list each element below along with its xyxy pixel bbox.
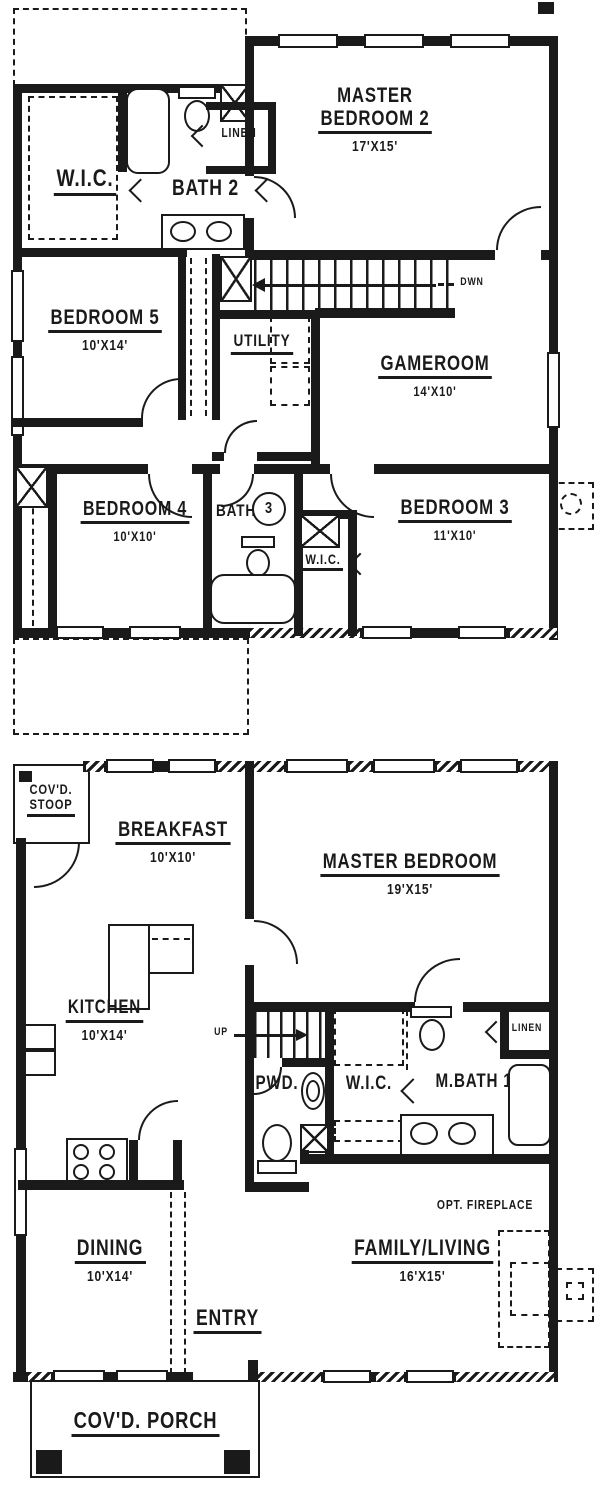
entry-name: ENTRY <box>194 1306 262 1334</box>
room-label-master-bedroom: MASTER BEDROOM 19'X15' <box>314 850 506 899</box>
stair-side-wall <box>212 254 220 420</box>
entry-column-dash <box>184 1192 186 1374</box>
sink <box>206 221 232 242</box>
door-arc <box>224 420 257 453</box>
room-label-breakfast: BREAKFAST 10'X10' <box>105 818 241 867</box>
door-opening <box>330 464 374 474</box>
linen-wall <box>500 1050 550 1059</box>
wic2-right-wall <box>348 510 357 636</box>
closet-window-box <box>15 466 48 508</box>
stairs-up-label: UP <box>209 1026 233 1038</box>
toilet-tank <box>410 1006 452 1018</box>
room-label-porch: COV'D. PORCH <box>68 1408 224 1437</box>
floor-plan-canvas: LINEN W.I.C. BATH 2 MASTER BEDROOM 2 17'… <box>0 0 600 1496</box>
fireplace-text: OPT. FIREPLACE <box>437 1198 533 1212</box>
lower-left-wall <box>16 838 26 1380</box>
bathtub <box>126 88 170 174</box>
dining-name: DINING <box>74 1236 145 1264</box>
gameroom-name: GAMEROOM <box>378 352 492 379</box>
window <box>460 759 518 773</box>
window <box>406 1370 454 1383</box>
kitchen-inner-wall <box>129 1140 138 1190</box>
chase-box <box>300 514 340 548</box>
chimney-flue-box <box>566 1282 584 1300</box>
burner <box>73 1144 89 1160</box>
utility-right-wall <box>311 310 320 466</box>
door-leaf <box>128 178 152 202</box>
stair-left-wall <box>245 1002 254 1192</box>
bath3-number: 3 <box>262 500 276 518</box>
door-opening <box>495 250 541 260</box>
window <box>362 626 412 639</box>
window <box>323 1370 371 1383</box>
wall-cavity-dash <box>190 258 192 416</box>
master-name: MASTER BEDROOM <box>320 850 499 877</box>
stoop-line2: STOOP <box>27 797 75 816</box>
room-label-linen-lower: LINEN <box>509 1022 546 1034</box>
kitchen-inner-wall <box>173 1140 182 1190</box>
window <box>286 759 348 773</box>
window <box>364 34 424 48</box>
bedroom5-bottom-wall <box>13 418 143 427</box>
closet-wall <box>48 464 57 636</box>
room-label-wic: W.I.C. <box>41 166 129 196</box>
room-label-bedroom4: BEDROOM 4 10'X10' <box>75 498 195 544</box>
chimney-flue-circle <box>560 493 582 515</box>
dwn-text: DWN <box>460 276 483 288</box>
burner <box>73 1164 89 1180</box>
counter-dash <box>152 938 190 940</box>
bedroom-row-wall <box>13 464 558 474</box>
attic-dashed-outline <box>13 8 247 86</box>
room-label-kitchen: KITCHEN 10'X14' <box>55 998 155 1044</box>
chase-box <box>300 1124 329 1153</box>
burner <box>99 1164 115 1180</box>
room-label-dining: DINING 10'X14' <box>58 1236 162 1286</box>
bathtub <box>210 574 296 624</box>
leader-dash <box>438 283 454 286</box>
bedroom4-dims: 10'X10' <box>113 529 156 544</box>
pedestal-sink-bowl <box>306 1080 320 1102</box>
wic-lower-name: W.I.C. <box>346 1074 392 1095</box>
bath3-number-text: 3 <box>265 500 273 518</box>
window <box>373 759 435 773</box>
toilet-bowl <box>262 1124 292 1162</box>
room-label-family-living: FAMILY/LIVING 16'X15' <box>337 1236 509 1286</box>
window <box>547 352 560 428</box>
stair-direction-line <box>264 284 436 287</box>
kitchen-sink <box>24 1050 56 1076</box>
porch-post <box>36 1450 62 1474</box>
window <box>458 626 506 639</box>
door-leaf <box>400 1078 425 1103</box>
roof-hatch <box>437 761 458 772</box>
stair-bottom-wall <box>315 308 455 318</box>
linen-wall <box>206 166 276 174</box>
pwd-bottom-wall <box>245 1182 309 1192</box>
label-opt-fireplace: OPT. FIREPLACE <box>429 1198 541 1212</box>
door-opening <box>254 1058 282 1067</box>
kitchen-dims: 10'X14' <box>81 1028 127 1045</box>
room-label-stoop: COV'D. STOOP <box>23 782 79 817</box>
roof-hatch <box>376 1372 404 1382</box>
wall-below-wic-block <box>13 248 187 257</box>
bedroom3-name: BEDROOM 3 <box>398 496 512 523</box>
bedroom4-name: BEDROOM 4 <box>81 498 190 524</box>
family-name: FAMILY/LIVING <box>352 1236 494 1264</box>
door-arc <box>34 842 80 888</box>
roof-hatch <box>251 1372 321 1382</box>
pwd-name: PWD. <box>256 1074 299 1095</box>
linen-wall <box>206 102 276 110</box>
stair-direction-line <box>234 1034 296 1037</box>
room-label-gameroom: GAMEROOM 14'X10' <box>367 352 503 399</box>
master2-dims: 17'X15' <box>352 139 398 156</box>
door-arc <box>141 378 181 418</box>
wall-corner-mark <box>538 2 554 14</box>
room-label-utility: UTILITY <box>222 332 302 355</box>
bath3-label-text: BATH <box>216 502 256 521</box>
stoop-line1: COV'D. <box>30 782 73 797</box>
kitchen-counter <box>148 924 194 974</box>
door-arc <box>254 920 298 964</box>
family-dims: 16'X15' <box>399 1269 445 1286</box>
wall-bath3-right <box>294 464 303 636</box>
window <box>14 1148 27 1236</box>
up-text: UP <box>214 1026 228 1038</box>
wall-bath2-master2 <box>245 36 254 176</box>
bedroom5-dims: 10'X14' <box>82 338 128 355</box>
wall-cavity-dash <box>205 258 207 416</box>
upper-right-wall <box>549 36 558 640</box>
door-opening <box>148 464 192 474</box>
bedroom5-name: BEDROOM 5 <box>48 306 162 333</box>
firebox-dashed <box>510 1262 550 1316</box>
toilet-bowl <box>419 1019 445 1051</box>
sink <box>170 221 196 242</box>
master-dims: 19'X15' <box>387 882 433 899</box>
window <box>168 759 216 773</box>
linen-wall <box>268 102 276 174</box>
window <box>450 34 510 48</box>
family-top-wall <box>300 1154 557 1164</box>
porch-name: COV'D. PORCH <box>71 1408 220 1437</box>
wic2-name: W.I.C. <box>303 552 343 571</box>
wic-label-text: W.I.C. <box>54 166 116 196</box>
room-label-bedroom3: BEDROOM 3 11'X10' <box>391 496 519 543</box>
kitchen-bottom-wall <box>18 1180 184 1190</box>
roof-hatch <box>350 761 371 772</box>
window <box>11 270 24 342</box>
utility-name: UTILITY <box>231 332 293 355</box>
door-arc <box>138 1100 178 1140</box>
kitchen-name: KITCHEN <box>66 998 144 1023</box>
wic-shelving-dashed <box>334 1120 404 1142</box>
stair-arrow-left <box>252 278 265 292</box>
roof-hatch <box>456 1372 554 1382</box>
room-label-linen: LINEN <box>213 126 266 140</box>
linen-lower-name: LINEN <box>512 1022 542 1034</box>
toilet-tank <box>257 1160 297 1174</box>
wic-shelving-dashed <box>334 1008 404 1066</box>
sink <box>448 1122 476 1145</box>
burner <box>99 1144 115 1160</box>
door-arc <box>414 958 460 1002</box>
mbath-name: M.BATH 1 <box>435 1072 512 1093</box>
toilet-bowl <box>246 549 270 577</box>
chase-box <box>220 256 252 302</box>
bath2-label-text: BATH 2 <box>172 176 239 200</box>
gameroom-dims: 14'X10' <box>413 384 456 399</box>
roof-dashed-outline <box>13 638 249 735</box>
breakfast-dims: 10'X10' <box>150 850 196 867</box>
sink <box>410 1122 438 1145</box>
room-label-pwd: PWD. <box>252 1074 302 1095</box>
dryer-dashed <box>270 366 310 406</box>
roof-hatch <box>510 628 557 638</box>
bathtub <box>508 1064 551 1146</box>
breakfast-name: BREAKFAST <box>116 818 231 845</box>
utility-bottom-wall <box>212 452 224 461</box>
roof-hatch <box>250 628 360 638</box>
window <box>278 34 338 48</box>
roof-hatch <box>86 761 104 772</box>
master2-line1: MASTER <box>337 84 413 107</box>
room-label-bedroom5: BEDROOM 5 10'X14' <box>41 306 169 355</box>
door-opening <box>220 464 254 474</box>
room-label-entry: ENTRY <box>190 1306 266 1334</box>
toilet-tank <box>241 536 275 548</box>
kitchen-sink <box>24 1024 56 1050</box>
room-label-wic2: W.I.C. <box>300 552 346 571</box>
wic-mbath-divider-dash <box>406 1010 408 1070</box>
stair-arrow-right <box>296 1029 308 1041</box>
entry-column-dash <box>170 1192 172 1374</box>
bedroom3-dims: 11'X10' <box>434 528 477 543</box>
toilet-tank <box>178 86 216 99</box>
stairs-dwn-label: DWN <box>453 276 491 288</box>
dining-dims: 10'X14' <box>87 1269 133 1286</box>
utility-bottom-wall <box>257 452 320 461</box>
room-label-bath2: BATH 2 <box>160 176 252 200</box>
window <box>106 759 154 773</box>
porch-post <box>224 1450 250 1474</box>
wall-breakfast-master <box>245 761 254 919</box>
master2-line2: BEDROOM 2 <box>318 107 432 134</box>
room-label-wic-lower: W.I.C. <box>338 1074 400 1095</box>
room-label-master-bedroom2: MASTER BEDROOM 2 17'X15' <box>303 84 447 156</box>
door-arc <box>496 206 541 250</box>
